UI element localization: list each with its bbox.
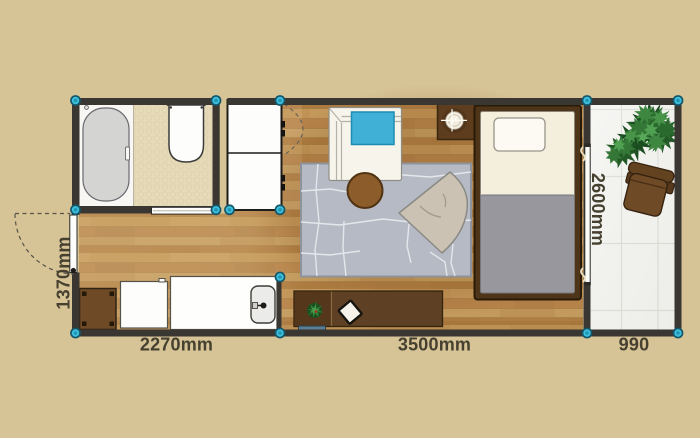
svg-text:1370mm: 1370mm [54, 236, 74, 309]
svg-text:3500mm: 3500mm [398, 335, 471, 355]
svg-text:2270mm: 2270mm [140, 335, 213, 355]
svg-text:990: 990 [619, 335, 650, 355]
svg-text:2600mm: 2600mm [588, 173, 608, 246]
